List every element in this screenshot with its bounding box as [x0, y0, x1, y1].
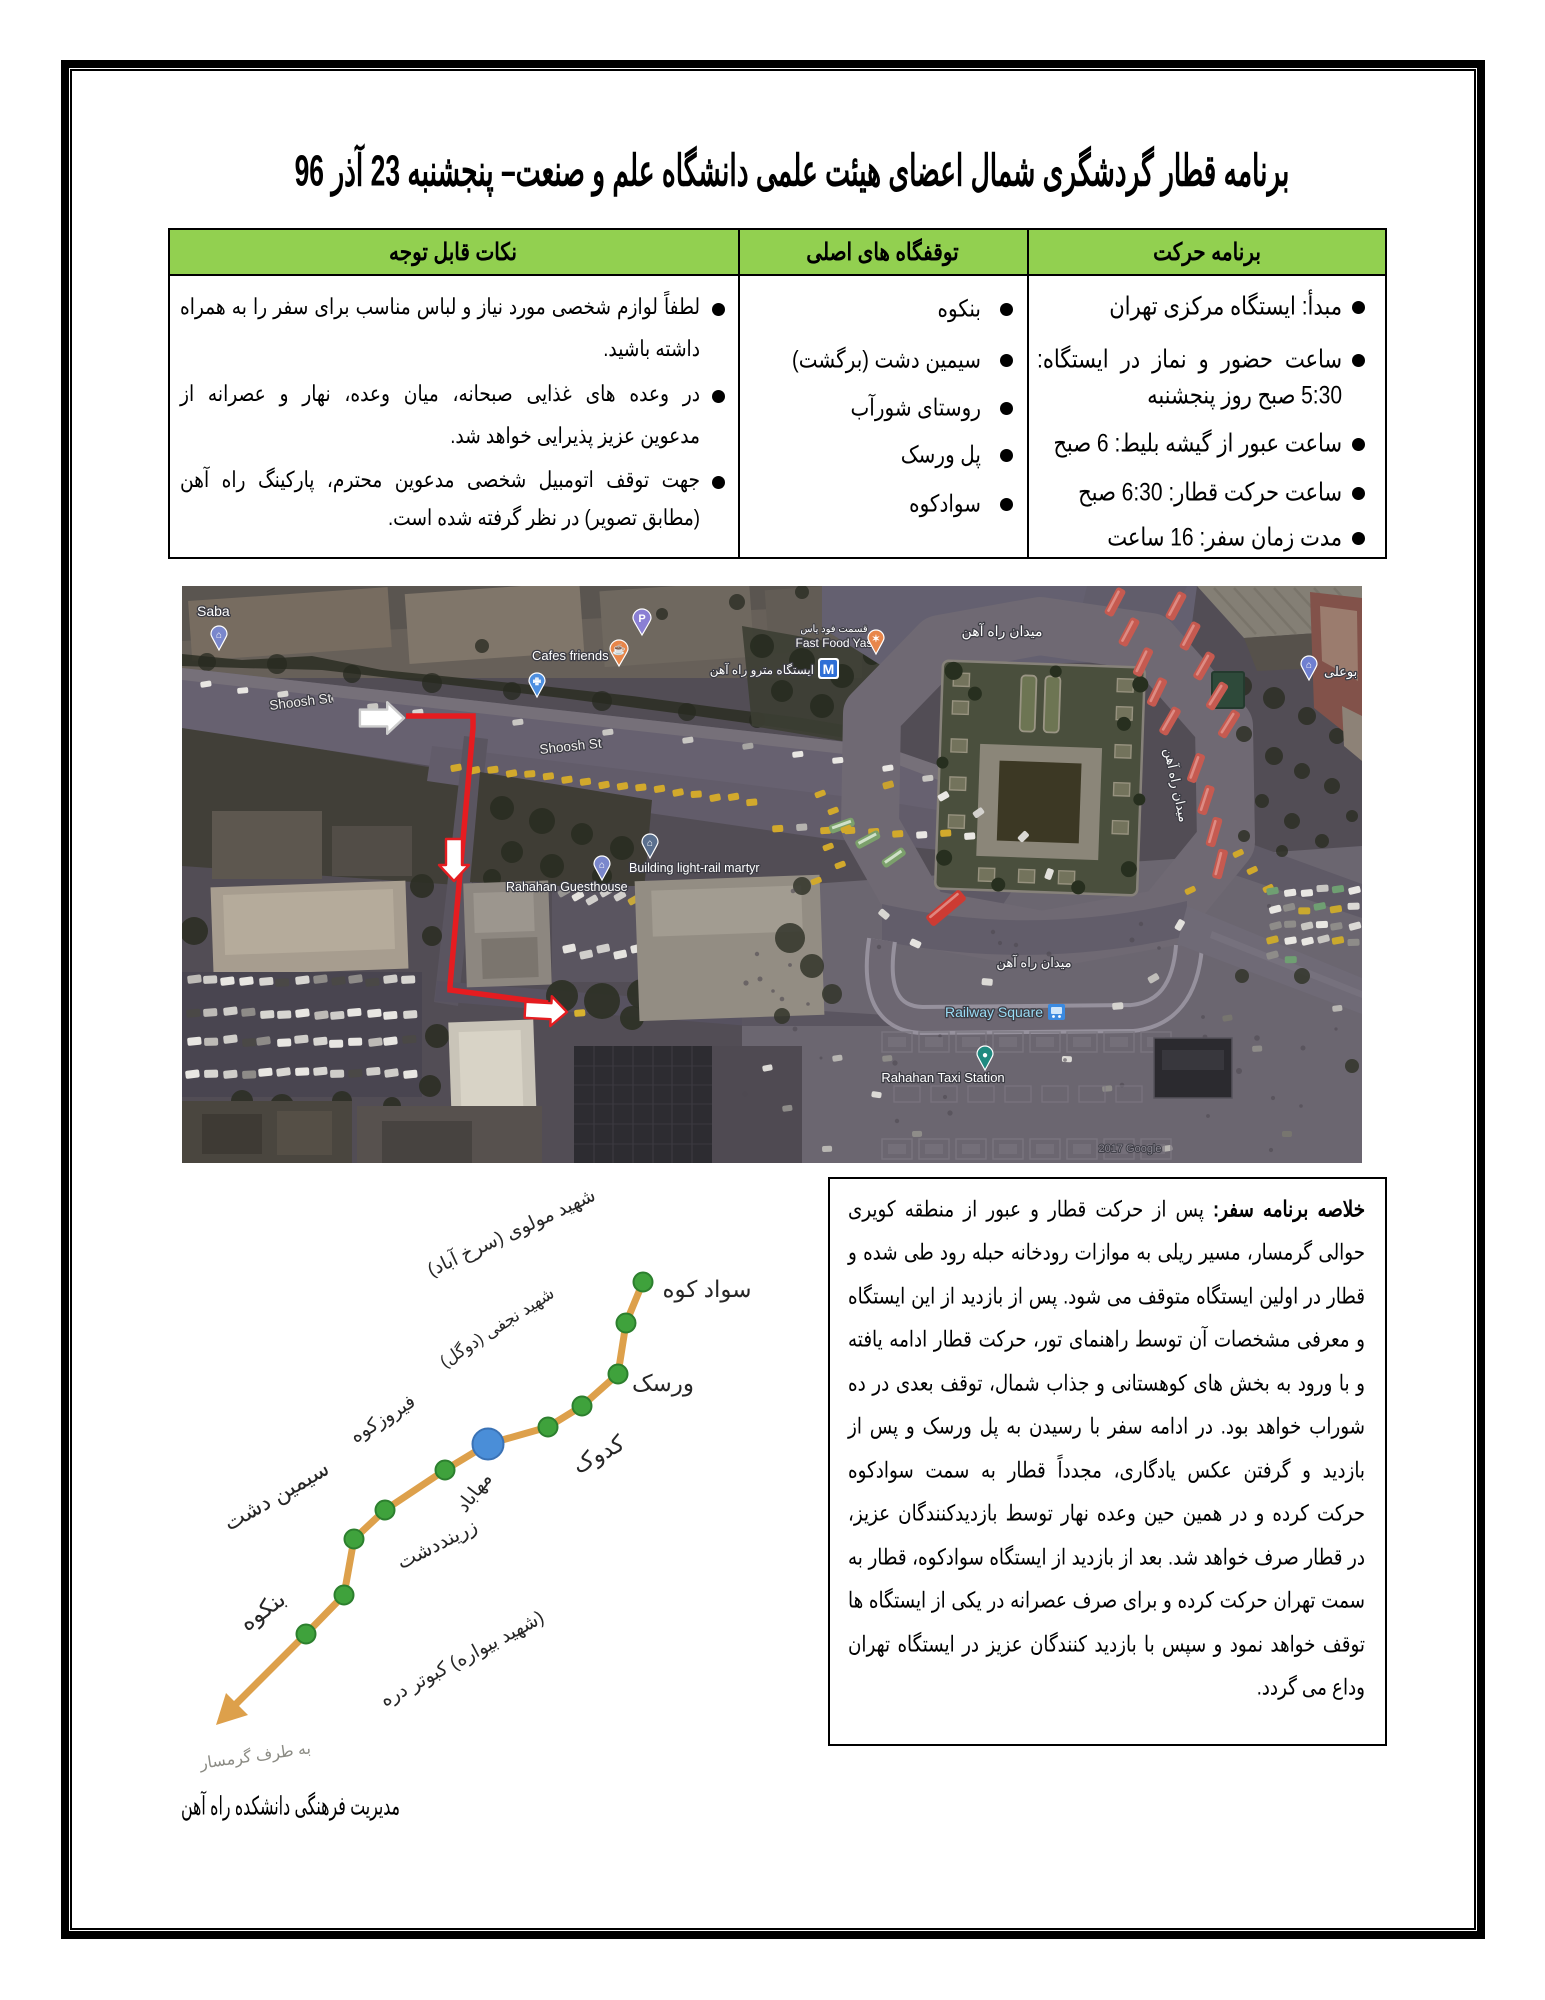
- svg-text:2017 Google: 2017 Google: [1099, 1143, 1162, 1155]
- svg-text:فیروزکوه: فیروزکوه: [347, 1391, 420, 1447]
- svg-text:Cafes friends: Cafes friends: [532, 648, 609, 663]
- svg-text:کدوک: کدوک: [568, 1430, 629, 1480]
- svg-text:سیمین دشت: سیمین دشت: [219, 1455, 333, 1536]
- svg-text:میدان راه آهن: میدان راه آهن: [962, 622, 1043, 640]
- svg-text:میدان راه آهن: میدان راه آهن: [996, 954, 1071, 971]
- svg-text:✶: ✶: [872, 634, 880, 645]
- svg-text:●: ●: [982, 1050, 988, 1061]
- svg-text:⌂: ⌂: [599, 860, 605, 871]
- svg-text:شهید نجفی (دوگل): شهید نجفی (دوگل): [436, 1283, 558, 1373]
- svg-text:Rahahan Taxi Station: Rahahan Taxi Station: [881, 1070, 1004, 1085]
- svg-text:Fast Food Yas: Fast Food Yas: [796, 636, 873, 650]
- svg-text:زرینددشت: زرینددشت: [394, 1515, 481, 1574]
- svg-text:Building light-rail martyr: Building light-rail martyr: [629, 861, 760, 875]
- svg-text:به طرف گرمسار: به طرف گرمسار: [197, 1738, 312, 1773]
- svg-text:ورسک: ورسک: [632, 1370, 694, 1397]
- svg-text:✙: ✙: [533, 677, 542, 688]
- svg-text:P: P: [638, 613, 645, 625]
- svg-text:سواد کوه: سواد کوه: [662, 1276, 751, 1303]
- svg-text:Saba: Saba: [197, 603, 230, 619]
- svg-text:(شهید بیواره) کبوتر دره: (شهید بیواره) کبوتر دره: [377, 1607, 548, 1711]
- svg-text:شهید مولوی (سرخ آباد): شهید مولوی (سرخ آباد): [424, 1183, 599, 1281]
- svg-text:⌂: ⌂: [647, 838, 653, 849]
- svg-text:Railway Square: Railway Square: [945, 1004, 1043, 1020]
- svg-text:قسمت فود یاس: قسمت فود یاس: [800, 624, 868, 635]
- svg-text:بوعلی: بوعلی: [1324, 664, 1357, 680]
- svg-text:⌂: ⌂: [1306, 660, 1312, 671]
- svg-text:M: M: [823, 661, 835, 677]
- svg-text:بنکوه: بنکوه: [234, 1585, 290, 1636]
- svg-text:⌂: ⌂: [216, 630, 222, 641]
- svg-text:☕: ☕: [612, 642, 626, 656]
- svg-text:Rahahan Guesthouse: Rahahan Guesthouse: [506, 880, 628, 894]
- svg-text:ایستگاه مترو راه آهن: ایستگاه مترو راه آهن: [710, 662, 814, 677]
- svg-text:مهاباد: مهاباد: [453, 1469, 497, 1517]
